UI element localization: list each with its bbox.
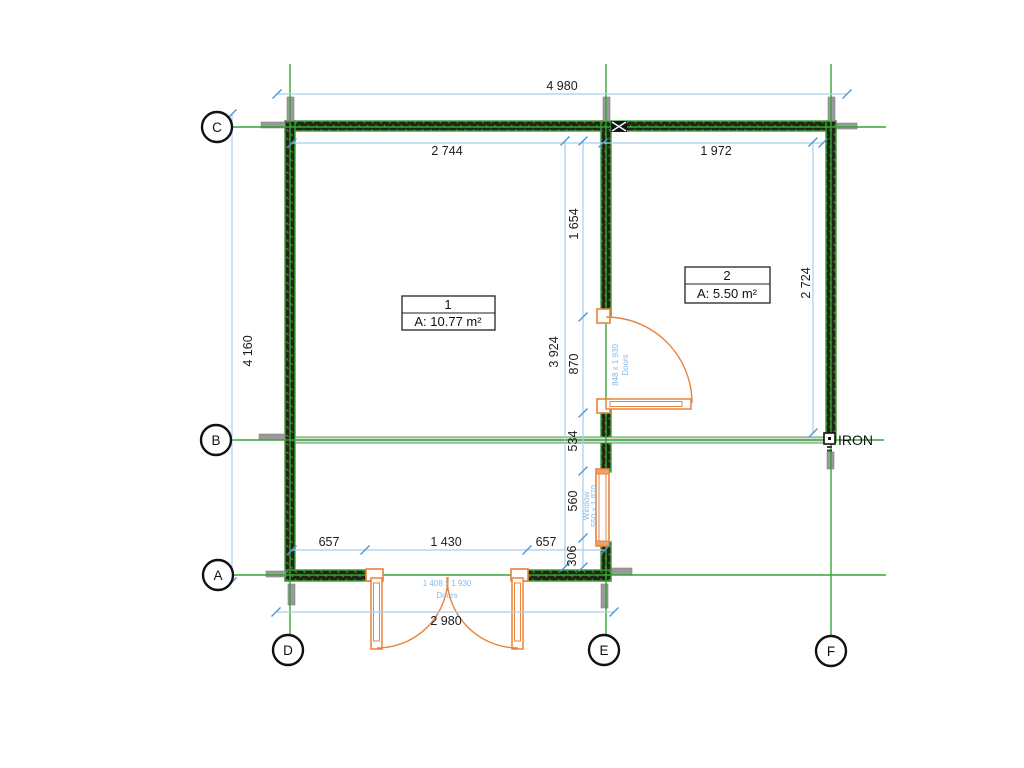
svg-text:E: E	[599, 643, 608, 658]
dim-room1-width: 2 744	[431, 144, 462, 158]
door-jamb	[597, 309, 610, 323]
interior-door-type-label: Doors	[621, 354, 630, 375]
room1-number: 1	[444, 297, 451, 312]
dim-overall-height: 4 160	[241, 335, 255, 366]
dim-room2-height: 2 724	[799, 267, 813, 298]
dim-seg-306: 306	[565, 546, 579, 567]
stub	[837, 123, 857, 129]
svg-text:F: F	[827, 644, 835, 659]
svg-text:D: D	[283, 643, 293, 658]
room-tag-2: 2 A: 5.50 m²	[685, 267, 770, 303]
room2-area: A: 5.50 m²	[697, 286, 758, 301]
svg-text:B: B	[211, 433, 220, 448]
grid-bubble-E: E	[589, 635, 619, 665]
room-tag-1: 1 A: 10.77 m²	[402, 296, 495, 330]
dim-seg-870: 870	[567, 354, 581, 375]
grid-bubble-D: D	[273, 635, 303, 665]
grid-bubble-C: C	[202, 112, 232, 142]
svg-text:C: C	[212, 120, 222, 135]
dim-overall-width: 4 980	[546, 79, 577, 93]
dim-bottom-657-left: 657	[319, 535, 340, 549]
background	[0, 0, 1024, 768]
stub	[259, 434, 285, 440]
entrance-door-size-label: 1 408 x 1 930	[423, 579, 472, 588]
dim-room1-height: 3 924	[547, 336, 561, 367]
wall-top-C	[285, 121, 836, 131]
grid-bubble-B: B	[201, 425, 231, 455]
dim-room2-width: 1 972	[700, 144, 731, 158]
dim-seg-534: 534	[566, 431, 580, 452]
dim-bottom-657-right: 657	[536, 535, 557, 549]
room2-number: 2	[723, 268, 730, 283]
iron-label: IRON	[838, 432, 873, 448]
grid-bubble-F: F	[816, 636, 846, 666]
stub	[612, 568, 632, 575]
section-marker	[611, 121, 627, 132]
window-type-label: Window	[582, 492, 591, 521]
room1-area: A: 10.77 m²	[414, 314, 482, 329]
stub	[266, 571, 286, 577]
window-end	[596, 469, 609, 474]
floor-plan-canvas: 4 980 2 744 1 972 4 160 3 924 2 724 1 65…	[0, 0, 1024, 768]
interior-door-size-label: 848 x 1 930	[611, 344, 620, 386]
stub	[601, 584, 608, 608]
floor-plan-page: 4 980 2 744 1 972 4 160 3 924 2 724 1 65…	[0, 0, 1024, 768]
dim-bottom-2980: 2 980	[430, 614, 461, 628]
dim-bottom-1430: 1 430	[430, 535, 461, 549]
svg-text:A: A	[213, 568, 222, 583]
dim-seg-1654: 1 654	[567, 208, 581, 239]
grid-bubble-A: A	[203, 560, 233, 590]
door-leaf	[606, 399, 691, 409]
window-size-label: 550 x 1 870	[590, 485, 599, 527]
door-leaf-left	[371, 578, 382, 649]
dim-seg-560: 560	[566, 491, 580, 512]
door-leaf-right	[512, 578, 523, 649]
window-end	[596, 541, 609, 546]
stub	[288, 584, 295, 605]
entrance-door-type-label: Doors	[436, 591, 457, 600]
